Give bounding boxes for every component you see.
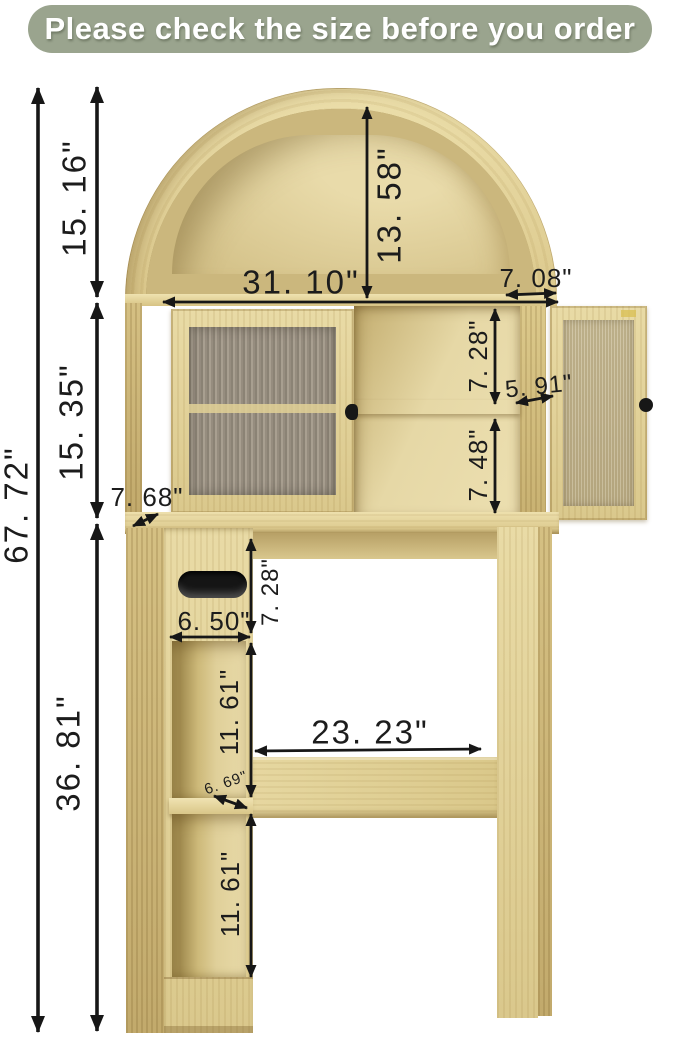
dim-arch-inner-height: 13. 58" [373, 146, 406, 263]
shelf-behind-glass [189, 404, 336, 413]
dim-arch-section-height: 15. 16" [58, 139, 91, 256]
right-leg-side [538, 527, 552, 1016]
tower-shelf [169, 798, 253, 814]
dim-tissue-width: 6. 50" [177, 608, 250, 634]
right-door-knob [639, 398, 653, 412]
dim-side-depth: 7. 68" [110, 484, 183, 510]
dim-lower-shelf-height: 7. 48" [465, 428, 491, 501]
right-leg-front [497, 527, 538, 1018]
dim-top-depth: 7. 08" [499, 265, 572, 291]
tissue-dispenser-slot [178, 571, 247, 598]
crossbar [253, 757, 497, 818]
middle-shelf [354, 400, 520, 414]
door-sticker [621, 310, 636, 317]
dim-top-width: 31. 10" [242, 266, 359, 299]
size-warning-banner: Please check the size before you order [28, 5, 652, 53]
cabinet-right-wall [520, 306, 546, 515]
dim-cubby-top-height: 11. 61" [216, 669, 242, 756]
product-dimension-diagram: Please check the size before you order [0, 0, 679, 1044]
right-door-glass [563, 320, 634, 506]
back-rail [253, 533, 497, 559]
dim-cabinet-section-height: 15. 35" [55, 363, 88, 480]
dim-clearance-width: 23. 23" [311, 716, 428, 749]
tower-left-side [126, 528, 164, 1033]
left-door-knob [345, 404, 358, 420]
dim-upper-shelf-height: 7. 28" [465, 319, 491, 392]
dim-tissue-height: 7. 28" [259, 558, 283, 626]
tower-base-seam [164, 977, 253, 979]
dim-overall-height: 67. 72" [0, 446, 33, 563]
dim-cubby-bottom-height: 11. 61" [217, 851, 243, 938]
dim-base-section-height: 36. 81" [52, 694, 85, 811]
